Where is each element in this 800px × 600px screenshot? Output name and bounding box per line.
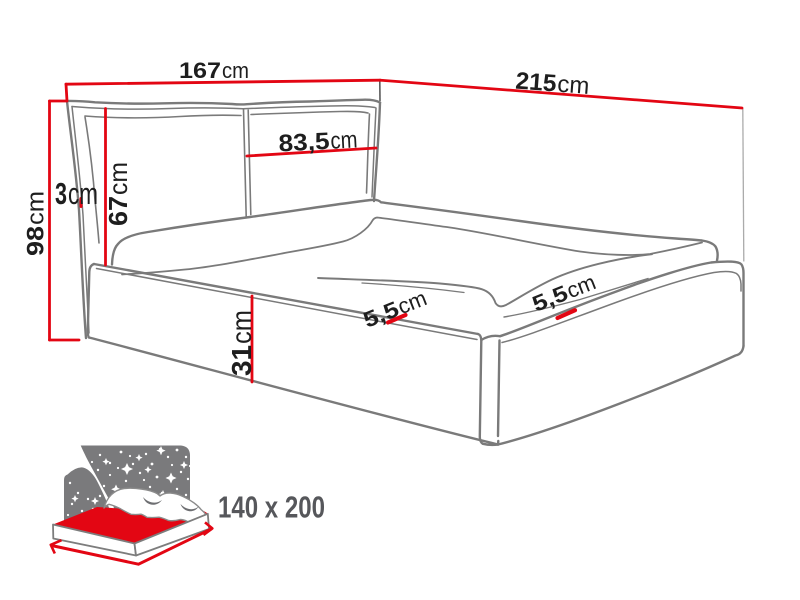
svg-text:31: 31 [226,345,257,376]
svg-text:cm: cm [556,71,590,100]
svg-text:cm: cm [68,176,98,211]
svg-text:cm: cm [103,162,133,195]
svg-text:cm: cm [23,191,50,225]
svg-text:67: 67 [103,196,133,226]
svg-text:cm: cm [226,310,257,344]
svg-text:3: 3 [55,176,67,211]
svg-text:98: 98 [23,226,50,256]
svg-text:140 x 200: 140 x 200 [218,490,325,525]
svg-text:83,5: 83,5 [278,128,330,158]
svg-text:167: 167 [179,58,221,83]
svg-text:cm: cm [222,58,249,83]
svg-text:215: 215 [515,68,558,98]
svg-text:cm: cm [330,126,358,154]
